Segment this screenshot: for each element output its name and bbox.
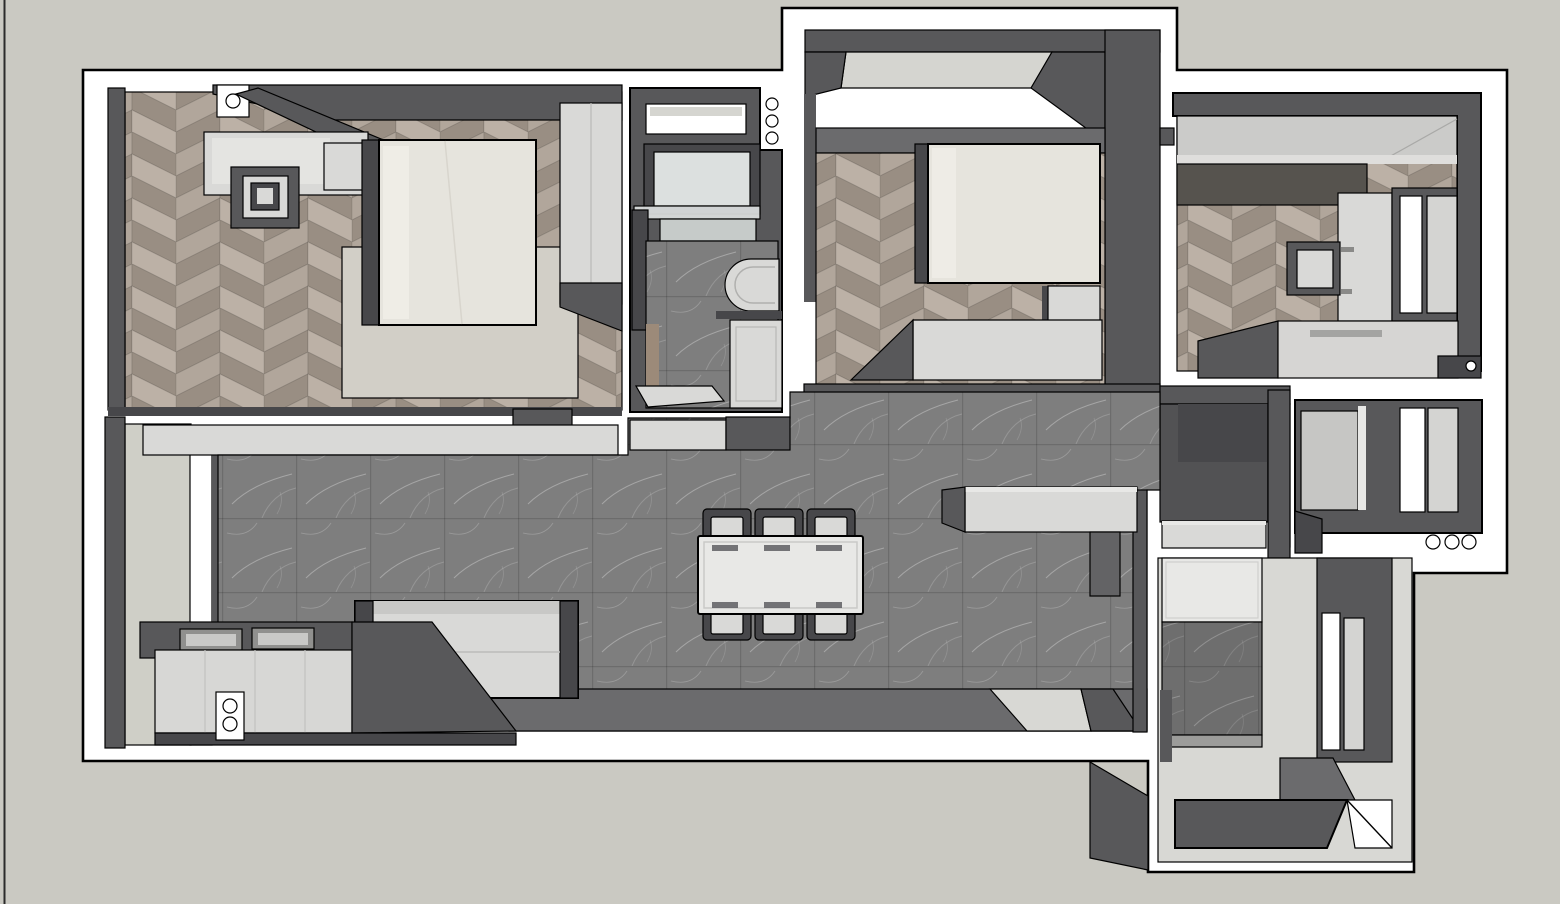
kitchen-east-wall: [1268, 390, 1290, 558]
floor-plan-render: [0, 0, 1560, 904]
hinge-circle: [223, 699, 237, 713]
hinge-circle: [1426, 535, 1440, 549]
desk-support-mark: [1341, 247, 1354, 252]
master-bedroom-west-wall: [108, 88, 125, 410]
bed-headboard: [362, 140, 379, 325]
balcony-right: [1295, 400, 1482, 553]
balcony-right-hinge-circles: [1426, 535, 1476, 549]
nightstand: [324, 143, 368, 190]
kitchen-counter: [1162, 521, 1266, 548]
hinge-circle: [1462, 535, 1476, 549]
north-shelf-dark-end: [726, 417, 790, 450]
bench-shadow-mark: [1310, 330, 1382, 337]
hinge-circle: [1466, 361, 1476, 371]
bedroom3-window-gap: [1400, 196, 1422, 313]
vanity-front: [660, 219, 756, 241]
balcony-right-pane-sliver: [1358, 406, 1366, 510]
dining-set: [698, 509, 863, 640]
door-pivot-circle: [226, 94, 240, 108]
hinge-circle: [766, 132, 778, 144]
vanity-chair-cushion: [257, 188, 273, 204]
island-slab-edge: [965, 487, 1137, 492]
counter-bottom-band: [155, 733, 516, 745]
foot-bench: [1048, 286, 1100, 324]
shower-divider: [716, 311, 782, 319]
bathroom-window-sill: [650, 107, 742, 116]
master-bedroom: [108, 85, 622, 447]
bedroom3-window-pane: [1427, 196, 1457, 313]
sink-counter-front: [155, 650, 352, 733]
sink-basin-bottom: [258, 633, 308, 645]
foyer-window-gap: [1322, 613, 1340, 750]
foyer-window-pane: [1344, 618, 1364, 750]
bedroom3-chair-seat: [1297, 250, 1333, 288]
bedroom2-dresser: [913, 320, 1102, 380]
sofa-arm-right: [560, 601, 578, 698]
balcony-right-pane-right: [1428, 408, 1458, 512]
north-shelf: [630, 420, 726, 450]
bedroom2-pillows: [932, 148, 956, 278]
desk-support-mark: [1341, 289, 1352, 294]
bedroom3-wardrobe-strip: [1177, 155, 1457, 164]
bathroom: [630, 88, 782, 412]
hinge-circle: [1445, 535, 1459, 549]
island-pillar: [1090, 532, 1120, 596]
sofa-backrest: [373, 601, 560, 614]
kitchen-counter-edge: [1162, 521, 1266, 525]
hinge-circle: [766, 98, 778, 110]
bedroom3-desk: [1338, 193, 1392, 321]
foyer-band: [1162, 735, 1262, 747]
bedroom2-west-wall: [804, 94, 816, 302]
balcony-right-wedge: [1295, 511, 1322, 553]
foyer-west-wall: [1160, 690, 1172, 762]
sink-basin-bottom: [186, 634, 236, 646]
hinge-circle: [223, 717, 237, 731]
mirror-cabinet-glass: [654, 152, 750, 206]
hinge-circle: [766, 115, 778, 127]
entry-step-lower: [1175, 800, 1347, 848]
island-slab: [965, 487, 1137, 532]
vanity-counter: [634, 206, 760, 219]
balcony-right-pane-left: [1301, 411, 1358, 510]
bedroom3-wall-notch: [1160, 128, 1174, 145]
bedroom2-east-wall: [1105, 30, 1160, 392]
bedroom3-bench: [1278, 321, 1458, 378]
north-beam-shelf: [143, 425, 618, 455]
balcony-right-window-gap: [1400, 408, 1425, 512]
bedroom2-window-sill: [841, 52, 1052, 88]
foyer-shoe-cabinet: [1162, 558, 1262, 622]
balcony-left-wall: [105, 417, 125, 748]
bathroom-hinge-circles: [766, 98, 778, 144]
kitchen: [1160, 386, 1290, 558]
floor-plan-canvas: [0, 0, 1560, 904]
bedroom-2: [804, 30, 1160, 394]
kitchen-inner-shade: [1178, 404, 1268, 462]
shower-tray: [730, 320, 782, 408]
bed-pillows: [383, 146, 409, 319]
bedroom-3: [1160, 93, 1481, 378]
foyer-tile-shade: [1162, 622, 1262, 735]
bedroom2-headboard: [915, 144, 928, 283]
